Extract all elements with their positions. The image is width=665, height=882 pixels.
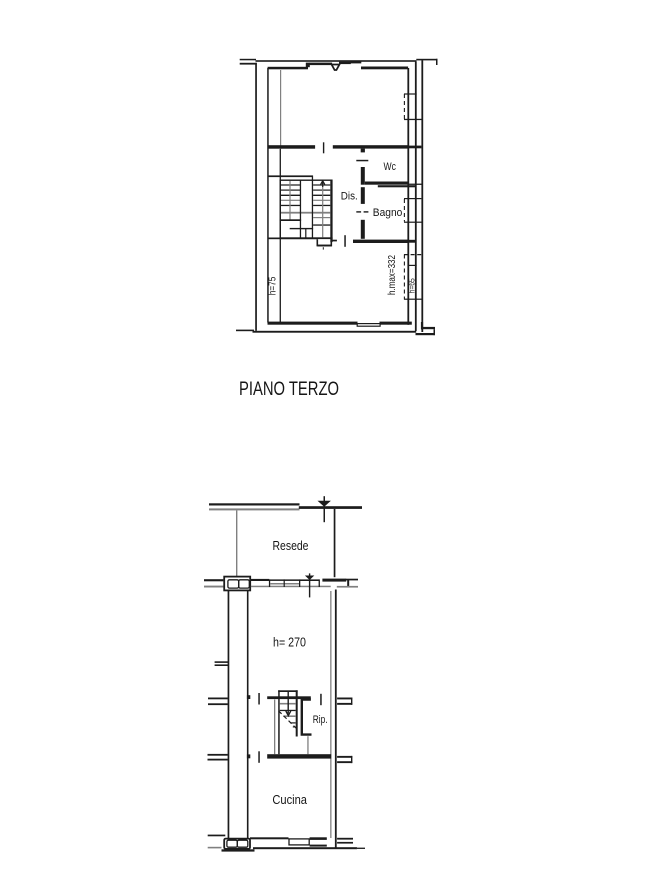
svg-text:Dis.: Dis. [341,191,358,203]
svg-text:Wc: Wc [384,161,397,173]
svg-text:h= 270: h= 270 [273,636,306,650]
svg-text:h=75: h=75 [267,276,278,295]
svg-text:Resede: Resede [273,539,309,553]
svg-text:Cucina: Cucina [272,793,307,807]
svg-text:h=65: h=65 [407,278,417,293]
svg-text:PIANO TERZO: PIANO TERZO [239,379,339,400]
svg-text:h.max=332: h.max=332 [387,255,398,295]
svg-text:Bagno: Bagno [373,207,403,219]
svg-text:Rip.: Rip. [313,714,328,726]
